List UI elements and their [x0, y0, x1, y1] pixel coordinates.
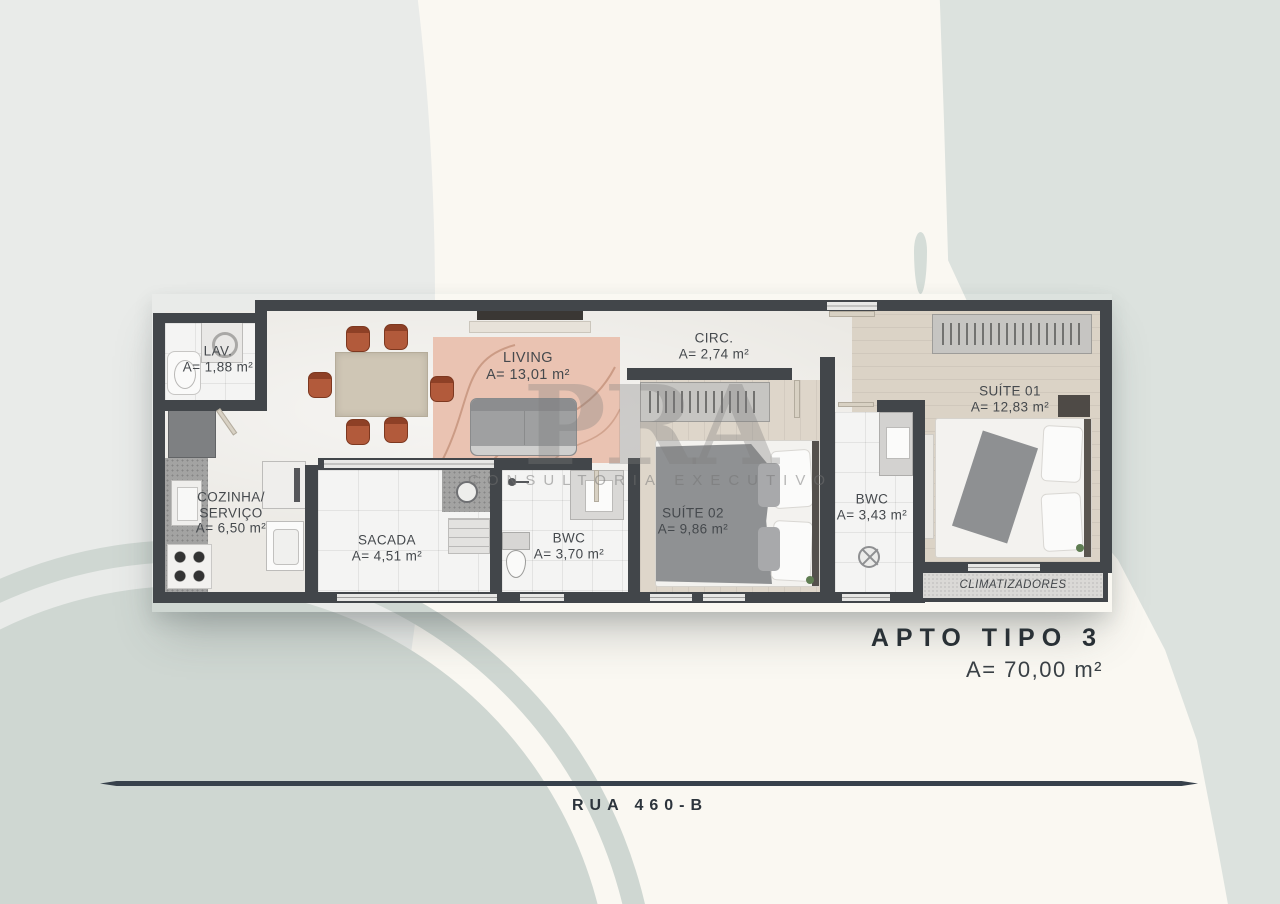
- sofa-backrest: [471, 399, 576, 411]
- tv-panel: [477, 310, 583, 320]
- dining-chair: [384, 417, 408, 443]
- wall-balcony-bwc: [490, 468, 502, 592]
- wall-top: [258, 300, 1112, 311]
- label-bwc-suite: BWC A= 3,43 m²: [837, 491, 907, 522]
- dining-chair: [308, 372, 332, 398]
- background-dot: [476, 852, 489, 869]
- wall-right: [1100, 300, 1112, 573]
- label-circ: CIRC. A= 2,74 m²: [679, 330, 749, 361]
- stove: [167, 544, 212, 589]
- door-bwc-social: [594, 470, 599, 502]
- wardrobe-suite01: [932, 314, 1092, 354]
- label-lav: LAV. A= 1,88 m²: [183, 343, 253, 374]
- dining-chair: [430, 376, 454, 402]
- apartment-title-block: APTO TIPO 3 A= 70,00 m²: [871, 624, 1103, 683]
- bed-throw: [952, 430, 1038, 543]
- label-suite02: SUÍTE 02 A= 9,86 m²: [658, 505, 728, 536]
- bed-accent-pillow: [758, 463, 780, 507]
- window-suite02: [650, 594, 692, 601]
- hangers: [942, 323, 1081, 344]
- wall-lav-bottom: [153, 400, 267, 411]
- door-bwc-suite: [838, 402, 874, 407]
- nightstand: [1058, 395, 1090, 417]
- bed-pillow: [1041, 492, 1084, 552]
- shower-head: [508, 474, 522, 488]
- door-suite02: [794, 380, 800, 418]
- window-bwc-suite: [842, 594, 890, 601]
- label-suite01: SUÍTE 01 A= 12,83 m²: [971, 383, 1049, 414]
- dining-chair: [346, 419, 370, 445]
- apartment-area: A= 70,00 m²: [871, 657, 1103, 683]
- entry-opening: [827, 302, 877, 310]
- clim-edge-line: [917, 598, 1108, 602]
- service-washer-handle: [294, 468, 300, 502]
- bed-pillow: [1041, 425, 1084, 483]
- wall-suite02-right: [820, 357, 835, 602]
- apartment-title: APTO TIPO 3: [871, 624, 1103, 653]
- balcony-basin: [456, 481, 478, 503]
- sofa-seat-edge: [471, 446, 576, 455]
- climatizadores-label: CLIMATIZADORES: [959, 579, 1066, 591]
- plant: [1076, 544, 1084, 552]
- page: CLIMATIZADORES LAV. A= 1,88 m² COZINHA/ …: [0, 0, 1280, 904]
- window-bwc-social: [520, 594, 564, 601]
- label-bwc-social: BWC A= 3,70 m²: [534, 530, 604, 561]
- dining-chair: [384, 324, 408, 350]
- shower-fan: [858, 546, 880, 568]
- wall-suite02-top: [627, 368, 792, 380]
- balcony-glass-door: [324, 460, 494, 468]
- balcony-railing: [337, 594, 497, 601]
- wall-lav-right: [255, 300, 267, 400]
- wall-suite02-left: [628, 458, 640, 602]
- toilet-tank: [502, 532, 530, 550]
- tv-console: [469, 321, 591, 333]
- vanity-sink: [886, 427, 910, 459]
- window-suite02: [703, 594, 745, 601]
- dining-chair: [346, 326, 370, 352]
- vanity-sink: [585, 480, 613, 512]
- entry-door: [829, 311, 875, 317]
- street-line: [100, 781, 1198, 786]
- dining-table: [335, 352, 428, 417]
- wall-lav-top: [153, 313, 267, 323]
- street-label: RUA 460-B: [572, 797, 708, 815]
- bed-headboard: [1084, 419, 1091, 557]
- bed-bench: [924, 434, 934, 539]
- hangers: [649, 391, 762, 412]
- fridge: [168, 404, 216, 458]
- floor-plan: CLIMATIZADORES LAV. A= 1,88 m² COZINHA/ …: [152, 294, 1112, 612]
- wall-left: [153, 313, 165, 603]
- label-living: LIVING A= 13,01 m²: [486, 350, 570, 384]
- label-cozinha: COZINHA/ SERVIÇO A= 6,50 m²: [183, 490, 279, 537]
- wall-service-balcony: [305, 465, 318, 592]
- balcony-counter: [442, 470, 490, 512]
- window-suite01: [968, 564, 1040, 571]
- sofa: [470, 398, 577, 456]
- bed-accent-pillow: [758, 527, 780, 571]
- balcony-cabinet: [448, 518, 490, 554]
- bed-headboard: [812, 441, 819, 586]
- plant: [806, 576, 814, 584]
- sofa-cushion-split: [524, 411, 525, 445]
- shower-arm: [515, 481, 529, 483]
- label-sacada: SACADA A= 4,51 m²: [352, 532, 422, 563]
- wardrobe-suite02: [640, 382, 770, 422]
- bed-suite01: [935, 418, 1092, 558]
- vanity-bwc-suite: [879, 412, 913, 476]
- background-droplet: [914, 232, 927, 294]
